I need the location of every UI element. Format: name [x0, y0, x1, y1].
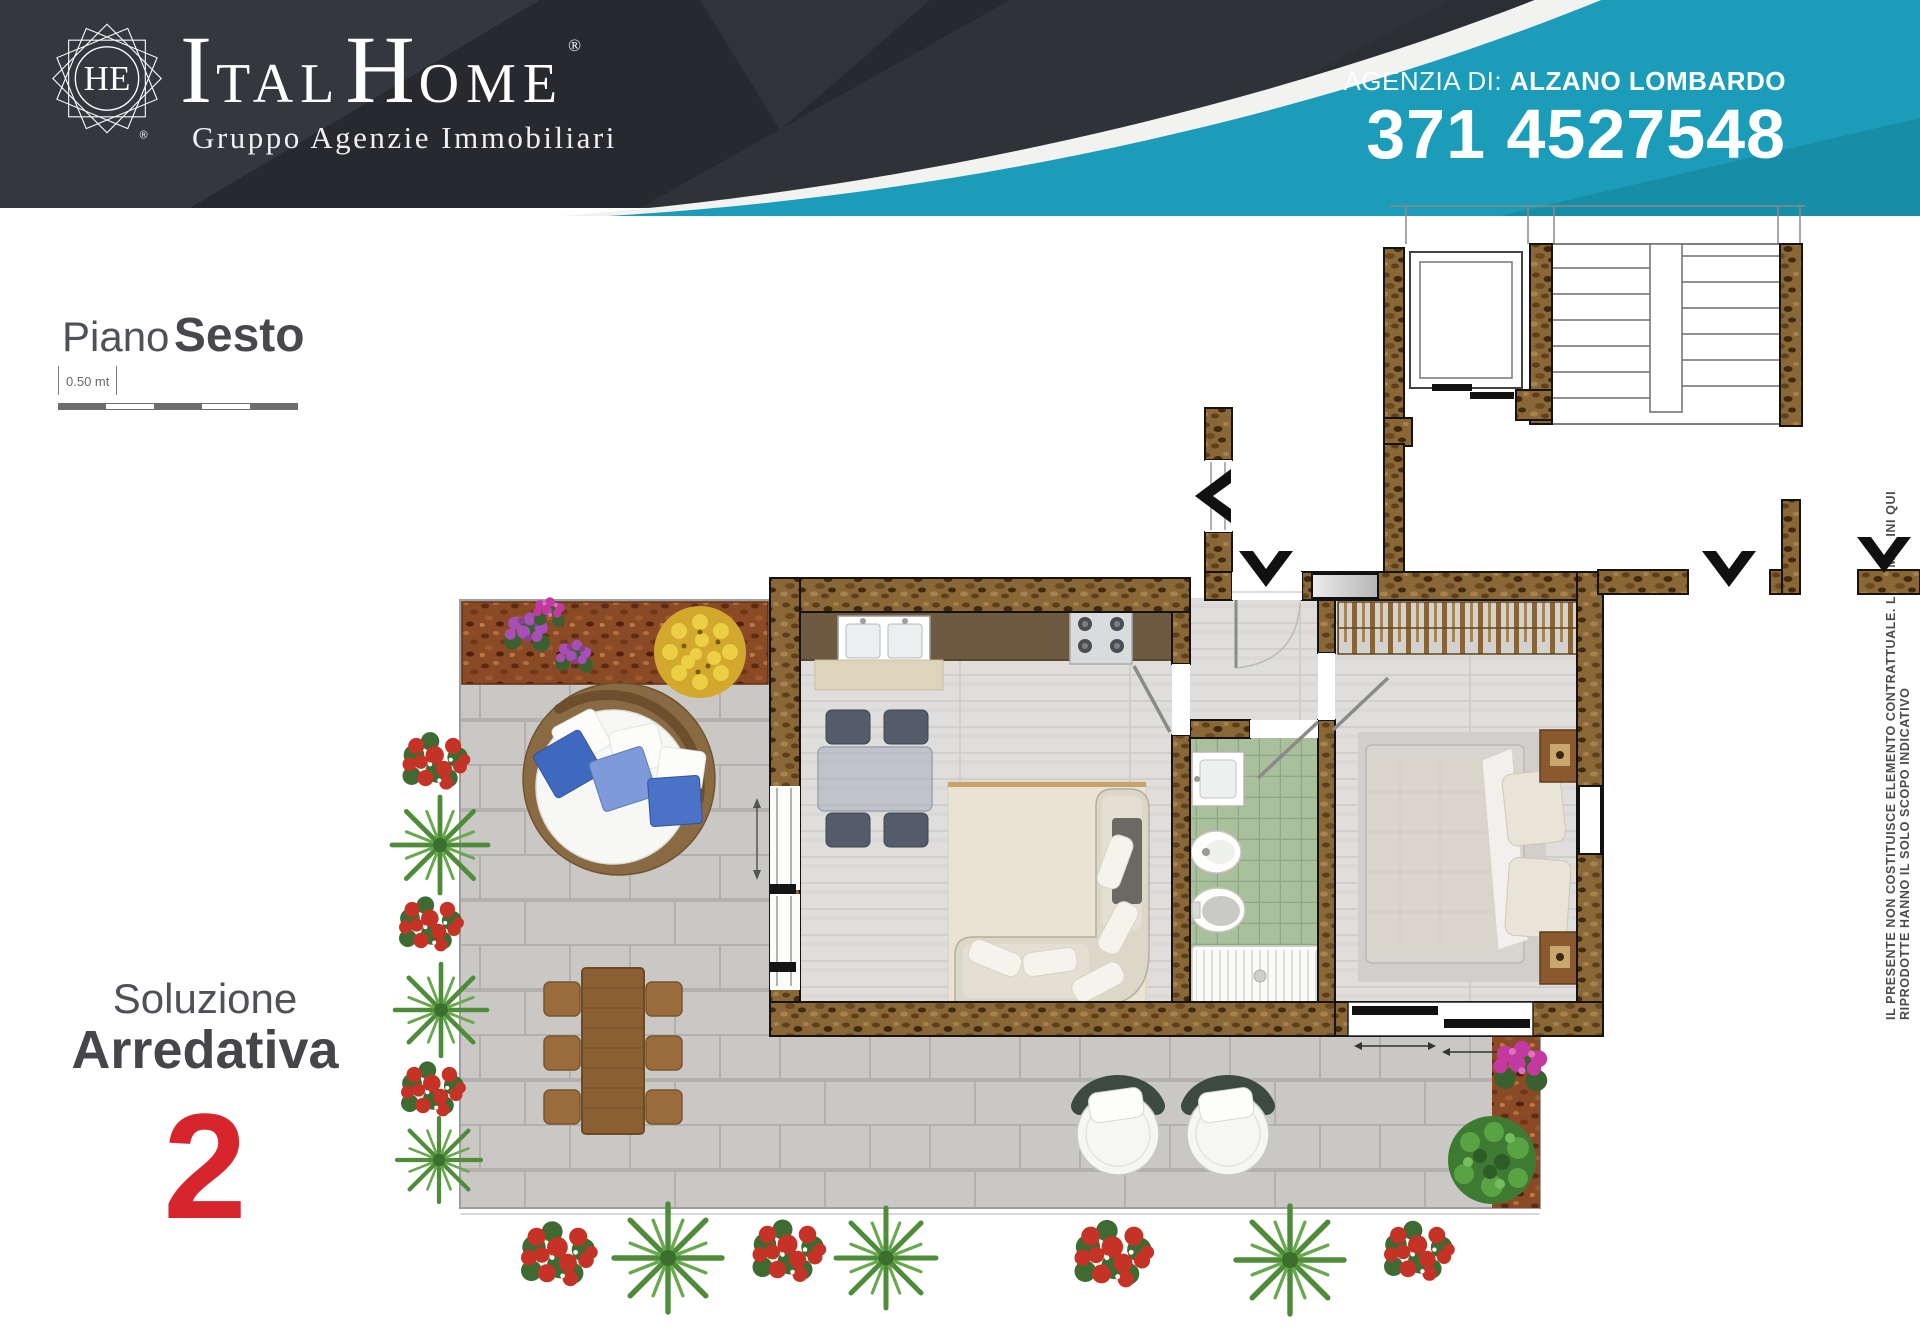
window [1312, 574, 1378, 598]
kitchen-sink [838, 616, 930, 664]
round-daybed [523, 683, 715, 875]
washbasin [1192, 752, 1244, 806]
bottom-planter-row-right [1075, 1206, 1455, 1314]
flyer-page: { "header": { "logo": { "monogram": "HE"… [0, 0, 1920, 1344]
glass-dining-table [818, 747, 932, 811]
elevator [1410, 252, 1522, 388]
wardrobe [1338, 602, 1577, 654]
floor-plan [0, 0, 1920, 1344]
arrow-down-icon [1857, 537, 1911, 573]
kitchen-hob [1070, 610, 1132, 664]
arrow-down-icon [1702, 551, 1756, 587]
shower-tray [1192, 946, 1328, 1006]
stair-block [1384, 206, 1805, 590]
lounge-chair [1187, 1084, 1269, 1175]
toilet [1191, 888, 1245, 932]
outdoor-dining-table [544, 968, 682, 1134]
lounge-chair [1077, 1084, 1159, 1175]
green-bush [1448, 1116, 1536, 1204]
entry-arrows [1195, 469, 1911, 587]
staircase [1552, 244, 1780, 424]
yellow-bush [654, 606, 746, 698]
kitchen-island [815, 660, 943, 690]
bidet [1191, 831, 1241, 873]
bottom-planter-row-left [521, 1204, 936, 1312]
window [1579, 786, 1601, 854]
